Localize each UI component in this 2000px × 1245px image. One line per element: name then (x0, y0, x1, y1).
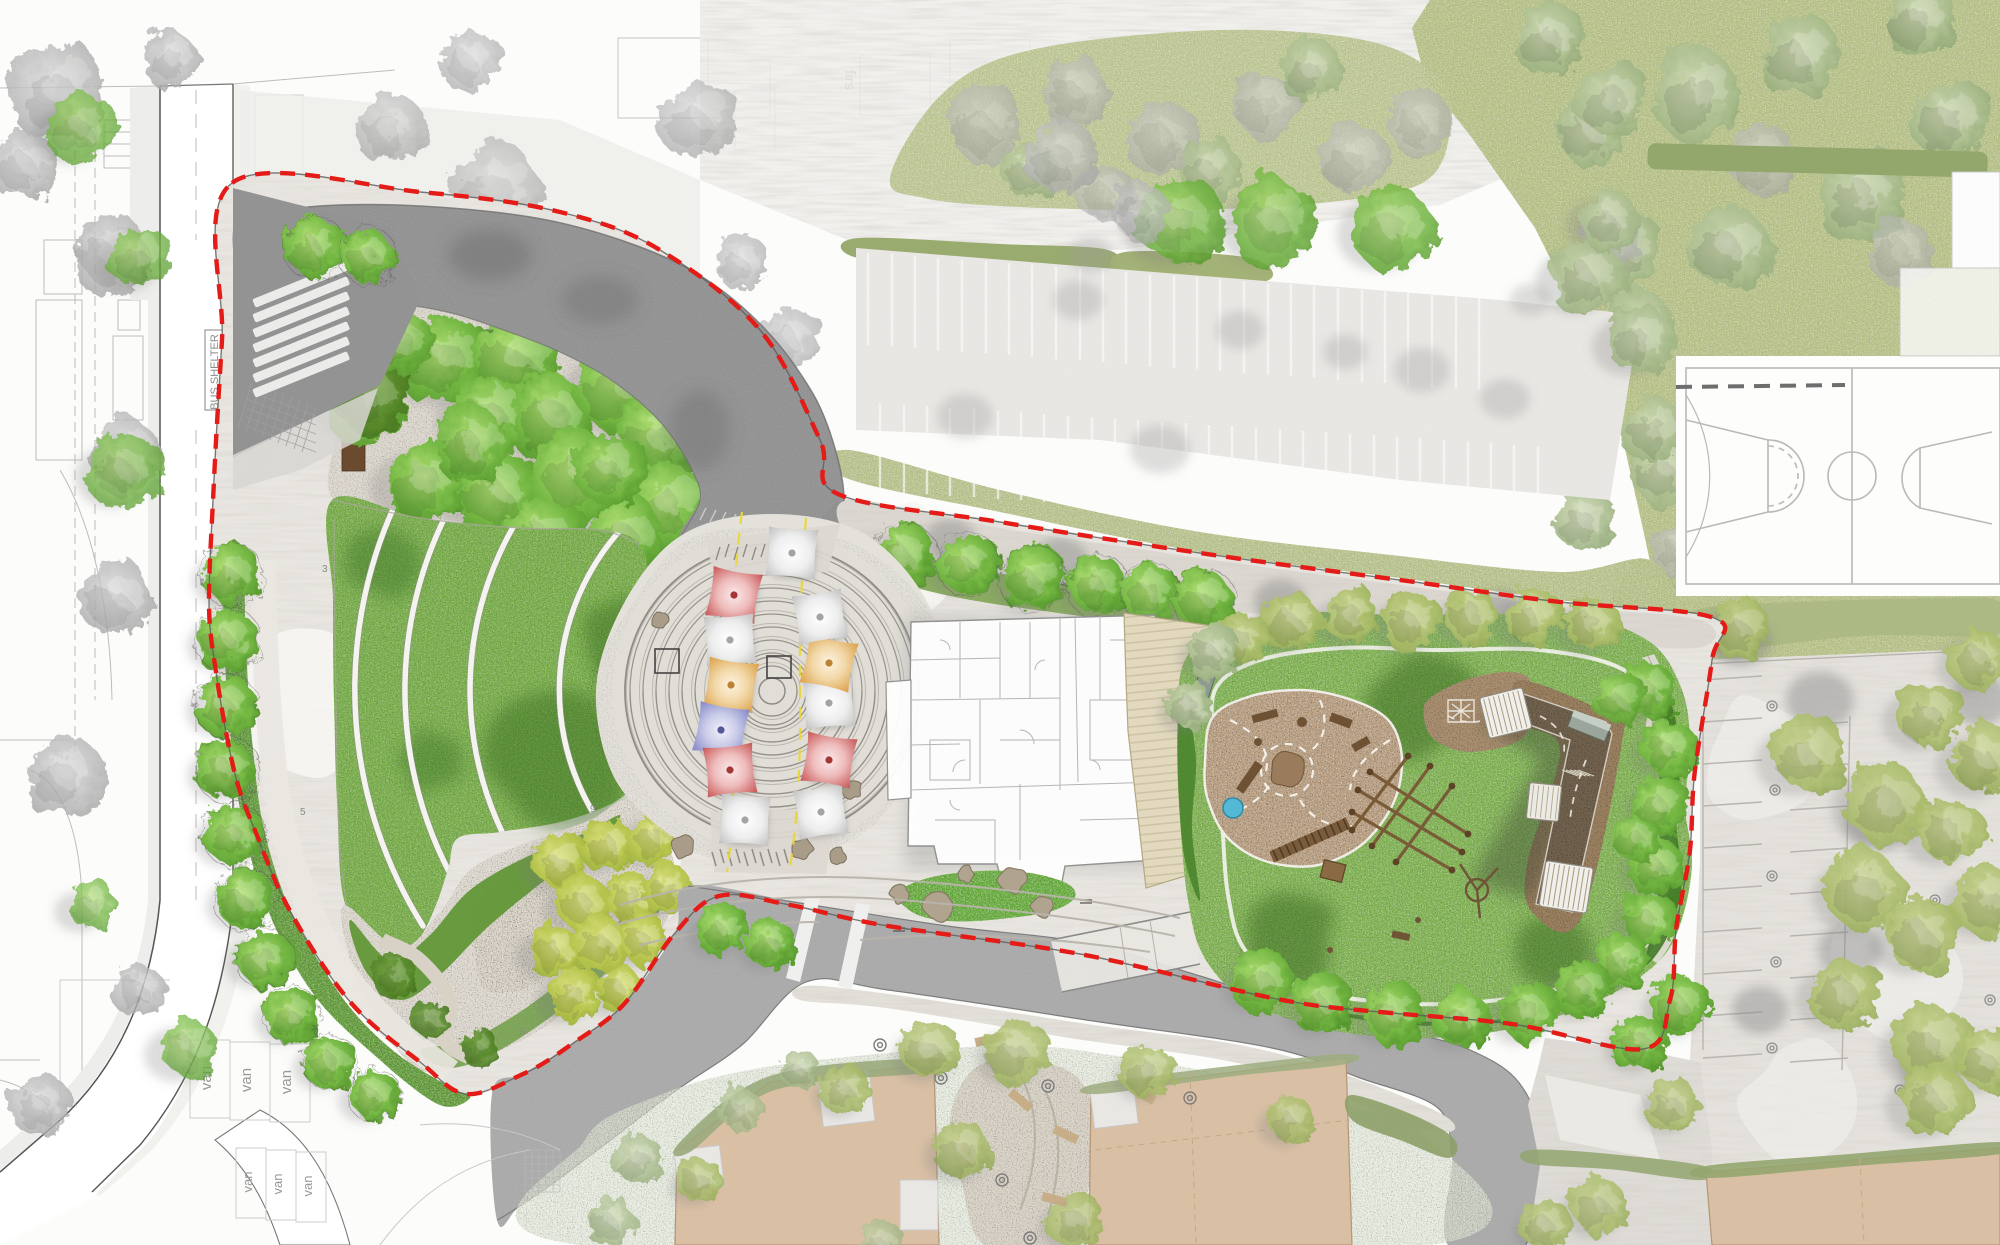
svg-text:5: 5 (300, 807, 306, 818)
svg-text:9: 9 (590, 804, 596, 815)
svg-text:van: van (270, 1174, 285, 1195)
svg-text:3: 3 (322, 564, 328, 575)
svg-text:van: van (240, 1172, 255, 1193)
svg-text:van: van (238, 1068, 255, 1092)
svg-text:van: van (300, 1176, 315, 1197)
svg-text:5: 5 (520, 1027, 526, 1038)
svg-text:van: van (278, 1070, 295, 1094)
